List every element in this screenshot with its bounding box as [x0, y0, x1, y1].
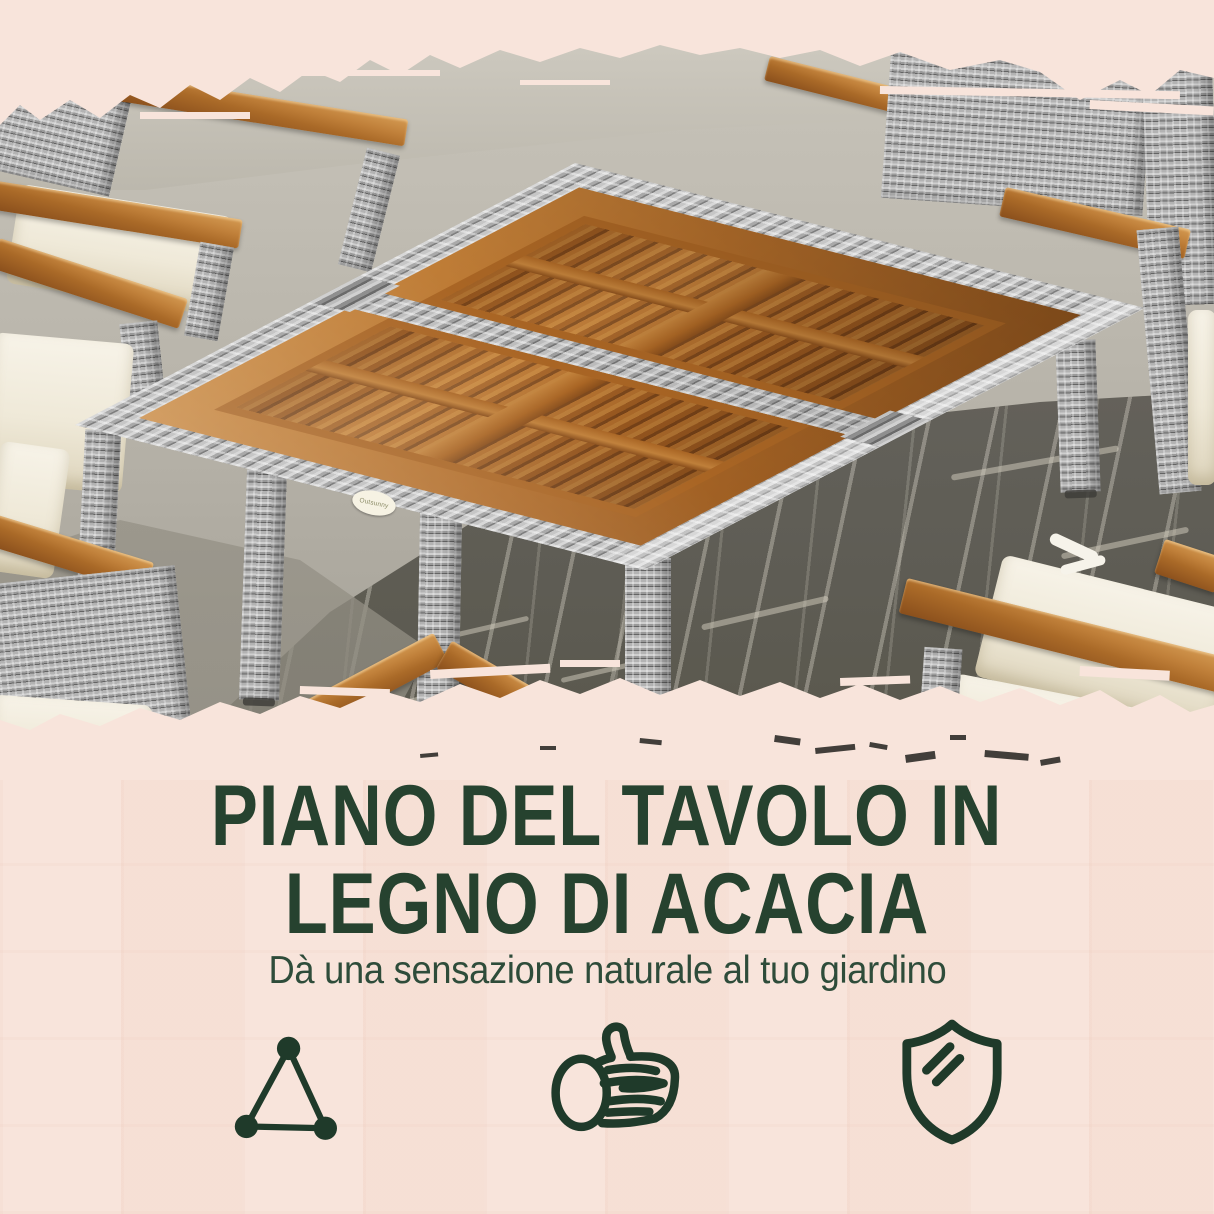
brush-stroke-top — [0, 0, 1214, 150]
feature-stable-structure — [233, 1034, 337, 1140]
brush-stroke-bottom — [0, 650, 1214, 780]
feature-icons-row — [0, 1010, 1214, 1170]
shield-protection-icon — [897, 1016, 1007, 1146]
table-leg — [1055, 339, 1100, 492]
headline-line-1: PIANO DEL TAVOLO IN — [211, 772, 1002, 860]
subheadline: Dà una sensazione naturale al tuo giardi… — [0, 948, 1214, 994]
chair-cushion — [1188, 310, 1214, 485]
feature-natural-wood — [549, 1020, 691, 1140]
triangle-structure-icon — [233, 1034, 337, 1140]
feature-protection — [897, 1016, 1007, 1146]
leg-foot — [1065, 489, 1097, 498]
brand-badge-label: Outsunny — [359, 497, 389, 510]
wood-log-icon — [549, 1020, 691, 1140]
subheadline-text: Dà una sensazione naturale al tuo giardi… — [268, 948, 946, 994]
headline-line-2: LEGNO DI ACACIA — [285, 860, 929, 948]
headline: PIANO DEL TAVOLO IN LEGNO DI ACACIA — [0, 772, 1214, 948]
chair-post-wicker — [338, 148, 400, 273]
product-infographic: Outsunny — [0, 0, 1214, 1214]
